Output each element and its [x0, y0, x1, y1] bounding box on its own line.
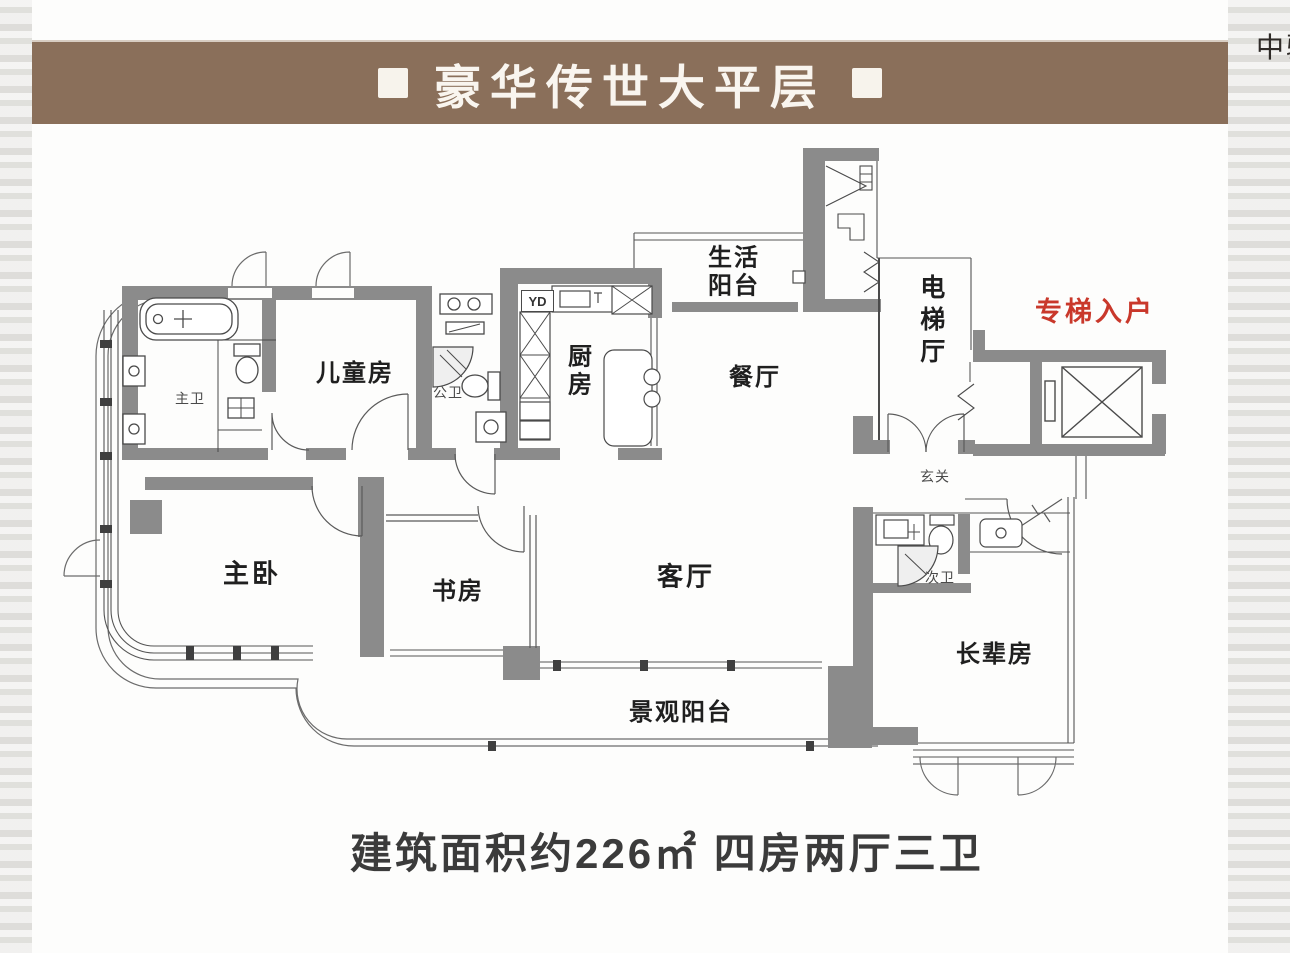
floorplan-svg: [0, 0, 1290, 953]
kitchen-fixtures: [520, 271, 805, 446]
room-label-living-room: 客厅: [657, 562, 715, 593]
room-label-study: 书房: [432, 578, 484, 606]
room-label-view-balcony: 景观阳台: [629, 699, 733, 727]
elevator: [958, 362, 1142, 437]
area-caption: 建筑面积约226㎡ 四房两厅三卫: [350, 820, 984, 881]
room-label-foyer: 玄关: [920, 469, 950, 486]
room-label-second-bath: 次卫: [925, 570, 955, 587]
master-bath-fixtures: [123, 298, 276, 452]
label-private-elevator: 专梯入户: [1035, 297, 1155, 329]
utility-shaft: [826, 166, 879, 292]
room-label-master-bath: 主卫: [175, 391, 205, 408]
room-label-public-bath: 公卫: [433, 385, 463, 402]
window-ticks: [100, 340, 814, 751]
room-label-elevator-hall: 电梯厅: [915, 274, 945, 370]
room-label-elders-room: 长辈房: [956, 641, 1034, 669]
room-label-kitchen: 厨 房: [568, 344, 594, 401]
poster-page: 豪华传世大平层 中骏: [0, 0, 1290, 953]
room-label-master-bedroom: 主卧: [223, 559, 281, 590]
yd-duct-label: YD: [521, 290, 554, 312]
public-bath-fixtures: [433, 294, 506, 442]
room-label-service-balcony: 生活 阳台: [708, 245, 760, 302]
room-label-dining: 餐厅: [729, 364, 781, 392]
room-label-kids-room: 儿童房: [316, 360, 394, 388]
